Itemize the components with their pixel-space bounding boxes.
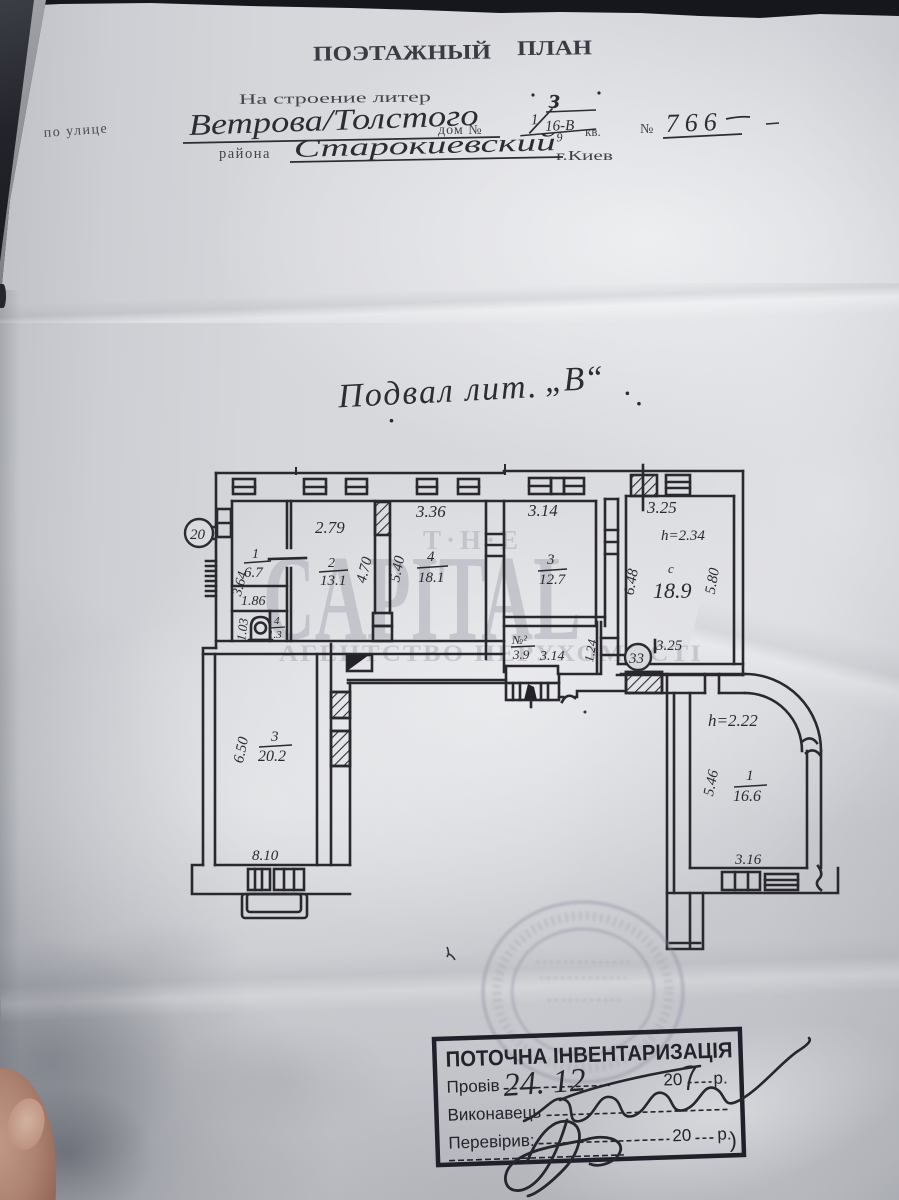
svg-text:3: 3 [546, 552, 555, 568]
svg-text:5.80: 5.80 [703, 566, 723, 595]
svg-text:16.6: 16.6 [733, 788, 761, 805]
svg-text:р.: р. [713, 1068, 728, 1087]
svg-text:Подвал лит.: Подвал лит. [336, 368, 539, 415]
svg-text:2: 2 [328, 556, 335, 571]
svg-text:1.03: 1.03 [233, 617, 251, 642]
svg-text:3.16: 3.16 [734, 852, 762, 868]
svg-text:кв.: кв. [585, 124, 601, 139]
svg-text:3: 3 [270, 729, 279, 745]
svg-text:Перевірив:: Перевірив: [448, 1131, 535, 1153]
svg-text:4: 4 [274, 615, 280, 627]
svg-text:3.36: 3.36 [415, 502, 446, 521]
svg-text:3.14: 3.14 [539, 649, 565, 664]
svg-text:24. 12: 24. 12 [502, 1062, 587, 1104]
svg-text:г.Киев: г.Киев [556, 149, 614, 164]
svg-text:2.79: 2.79 [315, 518, 345, 537]
svg-text:6.7: 6.7 [244, 565, 264, 581]
svg-text:ПЛАН: ПЛАН [517, 35, 592, 60]
svg-text:по улице: по улице [43, 122, 108, 141]
svg-text:Провів: Провів [446, 1076, 500, 1097]
svg-text:1: 1 [252, 547, 259, 562]
svg-text:1.3: 1.3 [268, 629, 282, 641]
svg-text:3.9: 3.9 [512, 647, 530, 662]
svg-text:„В“: „В“ [544, 360, 604, 400]
svg-text:h=2.34: h=2.34 [661, 528, 705, 544]
svg-text:12.7: 12.7 [539, 572, 567, 588]
svg-text:18.9: 18.9 [653, 578, 692, 603]
svg-text:3.14: 3.14 [527, 501, 558, 520]
svg-text:ПОЭТАЖНЫЙ: ПОЭТАЖНЫЙ [313, 39, 491, 65]
svg-text:5.46: 5.46 [701, 768, 722, 797]
svg-text:h=2.22: h=2.22 [708, 711, 758, 730]
svg-text:района: района [219, 146, 271, 162]
svg-text:18.1: 18.1 [418, 570, 444, 586]
svg-text:20: 20 [190, 527, 206, 543]
svg-text:33: 33 [628, 651, 644, 667]
svg-text:4: 4 [427, 549, 435, 565]
svg-text:20.2: 20.2 [258, 748, 286, 765]
svg-text:3.25: 3.25 [655, 638, 683, 654]
svg-text:№: № [640, 122, 653, 137]
svg-text:766: 766 [665, 107, 723, 138]
svg-text:№²: №² [511, 633, 527, 647]
svg-text:20: 20 [672, 1126, 692, 1146]
svg-text:3.25: 3.25 [646, 498, 677, 517]
svg-text:13.1: 13.1 [320, 573, 346, 589]
svg-text:1: 1 [746, 768, 754, 784]
svg-text:6.48: 6.48 [622, 567, 642, 596]
svg-text:6.50: 6.50 [231, 735, 252, 764]
svg-text:8.10: 8.10 [252, 848, 279, 864]
svg-text:): ) [729, 1127, 737, 1152]
svg-text:Виконавець: Виконавець [447, 1103, 541, 1125]
svg-text:с: с [668, 561, 674, 576]
